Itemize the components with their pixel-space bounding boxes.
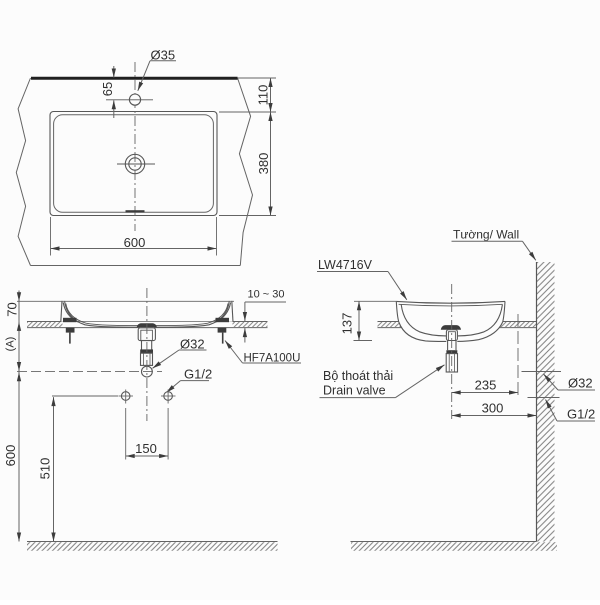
- svg-text:(A): (A): [5, 337, 17, 352]
- svg-text:137: 137: [340, 313, 355, 335]
- svg-text:10 ~ 30: 10 ~ 30: [248, 289, 285, 301]
- svg-text:Bộ thoát thải: Bộ thoát thải: [323, 369, 393, 383]
- svg-text:Drain valve: Drain valve: [323, 384, 386, 398]
- svg-text:110: 110: [256, 85, 271, 106]
- svg-text:LW4716V: LW4716V: [318, 258, 373, 272]
- svg-text:600: 600: [3, 445, 18, 467]
- svg-text:235: 235: [475, 378, 497, 393]
- svg-text:G1/2: G1/2: [567, 407, 595, 422]
- svg-text:380: 380: [256, 153, 271, 175]
- svg-text:510: 510: [38, 458, 53, 480]
- svg-text:70: 70: [5, 302, 20, 316]
- svg-text:G1/2: G1/2: [184, 367, 212, 382]
- svg-text:Ø32: Ø32: [568, 376, 593, 391]
- svg-text:150: 150: [135, 441, 157, 456]
- svg-text:65: 65: [100, 82, 115, 96]
- svg-text:Tường/ Wall: Tường/ Wall: [453, 228, 519, 242]
- svg-text:600: 600: [124, 235, 146, 250]
- svg-text:300: 300: [482, 401, 504, 416]
- svg-text:Ø32: Ø32: [180, 337, 205, 352]
- svg-text:Ø35: Ø35: [151, 48, 176, 63]
